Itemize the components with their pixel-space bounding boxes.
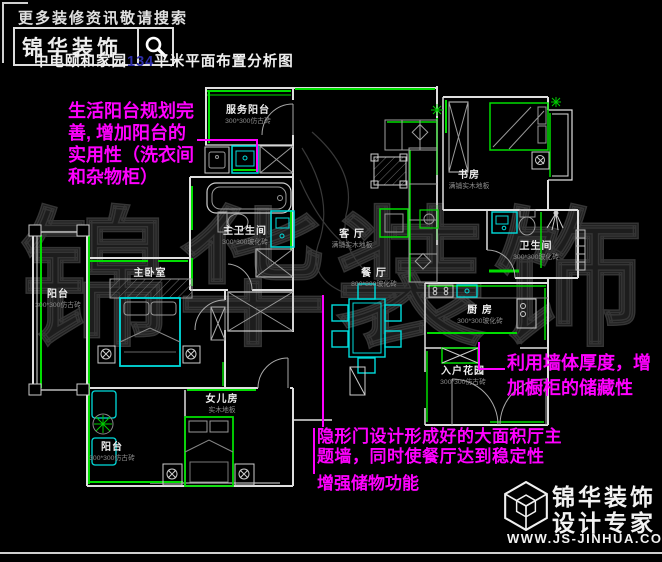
room-label-master-bath: 主卫生间 300*300玻化砖: [218, 226, 272, 248]
annotation-cabinet-note: 利用墙体厚度，增 加橱柜的储藏性: [507, 351, 651, 401]
left-edge-line: [2, 3, 4, 63]
annotation-door-note: 隐形门设计形成好的大面积厅主 题墙，同时使餐厅达到稳定性: [317, 427, 562, 467]
leader-line: [256, 139, 258, 172]
top-edge-line: [2, 2, 28, 4]
title-area-number: 134: [127, 54, 154, 70]
storage-cabinet-x: [260, 146, 293, 173]
bed-icon: [185, 417, 233, 486]
coffee-table-icon: [371, 154, 407, 188]
header-slogan: 更多装修资讯敬请搜索: [18, 7, 188, 28]
study-furniture: [431, 97, 561, 172]
room-label-study: 书房 满铺实木地板: [445, 170, 493, 192]
room-label-service-balcony: 服务阳台 300*300仿古砖: [221, 105, 275, 127]
room-label-kitchen: 厨 房 300*300玻化砖: [453, 305, 507, 327]
headboard: [110, 279, 192, 298]
logo-website: WWW.JS-JINHUA.COM: [507, 531, 662, 546]
daughter-room-furniture: [163, 417, 254, 486]
room-label-daughter-room: 女儿房 实木地板: [206, 394, 239, 416]
title-prefix: 中电颐和家园: [34, 54, 127, 70]
room-label-bathroom: 卫生间 300*300玻化砖: [509, 241, 563, 263]
leader-line: [478, 342, 480, 370]
nightstand-lamp-icon: [532, 152, 549, 169]
washing-machine-icon: [232, 146, 258, 173]
floor-plan-page: 锦华装饰: [0, 0, 662, 562]
leader-line: [322, 295, 324, 427]
leader-line: [197, 139, 258, 141]
page-title: 中电颐和家园134平米平面布置分析图: [34, 50, 294, 71]
leader-line: [313, 428, 315, 474]
nightstand-lamp-icon: [235, 464, 254, 485]
room-label-living: 客 厅 满铺实木地板: [328, 229, 376, 251]
logo-cube-icon: [503, 481, 549, 531]
plant-icon: [93, 414, 113, 434]
title-suffix: 平米平面布置分析图: [154, 54, 294, 70]
room-label-dining: 餐 厅 800*800玻化砖: [347, 268, 401, 290]
bottom-rule: [0, 552, 662, 554]
laundry-fixtures: [205, 146, 293, 173]
annotation-balcony-note: 生活阳台规划完 善, 增加阳台的 实用性（洗衣间 和杂物柜）: [68, 100, 194, 188]
annotation-storage-note: 增强储物功能: [317, 469, 419, 494]
leader-line: [478, 368, 505, 370]
room-label-master-bedroom: 主卧室: [134, 268, 167, 280]
plant-icon: [431, 104, 443, 116]
wardrobe-x: [449, 102, 468, 172]
plant-icon: [551, 97, 561, 107]
room-label-balcony-bottom: 阳台 300*300仿古砖: [85, 442, 139, 464]
room-label-balcony-left: 阳台 300*300仿古砖: [31, 289, 85, 311]
